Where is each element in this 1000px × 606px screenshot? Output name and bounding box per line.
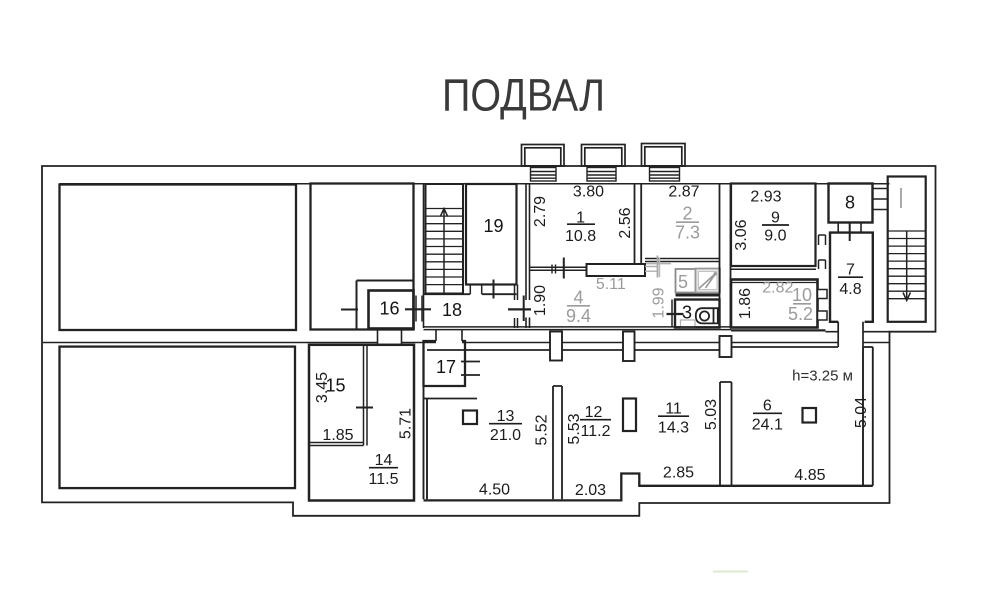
svg-text:2.93: 2.93 bbox=[750, 189, 781, 206]
svg-text:10.8: 10.8 bbox=[565, 228, 596, 245]
svg-text:4.85: 4.85 bbox=[794, 467, 825, 484]
svg-text:15: 15 bbox=[325, 376, 345, 396]
svg-text:11: 11 bbox=[665, 401, 682, 418]
svg-text:5: 5 bbox=[678, 272, 688, 292]
svg-text:18: 18 bbox=[442, 300, 462, 320]
svg-text:2.87: 2.87 bbox=[668, 184, 699, 201]
svg-text:2: 2 bbox=[682, 204, 692, 224]
svg-text:5.2: 5.2 bbox=[788, 304, 813, 324]
svg-text:1.99: 1.99 bbox=[651, 287, 668, 318]
svg-text:19: 19 bbox=[483, 216, 503, 236]
svg-text:8: 8 bbox=[845, 193, 855, 213]
svg-text:14: 14 bbox=[375, 452, 393, 469]
svg-text:5.71: 5.71 bbox=[398, 408, 415, 439]
svg-text:5.03: 5.03 bbox=[703, 399, 720, 430]
svg-text:h=3.25 м: h=3.25 м bbox=[792, 368, 853, 385]
svg-text:3.06: 3.06 bbox=[733, 219, 750, 250]
svg-text:24.1: 24.1 bbox=[752, 417, 783, 434]
svg-text:3.80: 3.80 bbox=[573, 184, 604, 201]
svg-text:13: 13 bbox=[497, 408, 515, 425]
svg-text:7.3: 7.3 bbox=[675, 223, 700, 243]
svg-text:4.50: 4.50 bbox=[479, 482, 510, 499]
svg-text:9.4: 9.4 bbox=[566, 306, 591, 326]
svg-text:5.04: 5.04 bbox=[853, 397, 870, 428]
svg-text:10: 10 bbox=[792, 285, 812, 305]
svg-text:3: 3 bbox=[682, 303, 692, 323]
svg-text:14.3: 14.3 bbox=[658, 420, 689, 437]
svg-text:ПОДВАЛ: ПОДВАЛ bbox=[442, 70, 605, 121]
svg-text:1.86: 1.86 bbox=[737, 288, 754, 319]
svg-text:4.8: 4.8 bbox=[839, 281, 861, 298]
svg-text:5.11: 5.11 bbox=[596, 276, 626, 293]
svg-text:2.82: 2.82 bbox=[762, 280, 793, 297]
svg-text:21.0: 21.0 bbox=[490, 427, 521, 444]
svg-text:7: 7 bbox=[846, 262, 855, 279]
svg-text:2.79: 2.79 bbox=[532, 196, 549, 227]
svg-text:2.56: 2.56 bbox=[617, 207, 634, 238]
svg-text:11.2: 11.2 bbox=[581, 423, 611, 440]
svg-text:17: 17 bbox=[436, 357, 456, 377]
svg-text:9.0: 9.0 bbox=[764, 228, 786, 245]
svg-text:12: 12 bbox=[585, 404, 603, 421]
svg-text:2.03: 2.03 bbox=[575, 482, 606, 499]
svg-text:4: 4 bbox=[573, 288, 583, 308]
svg-text:1.85: 1.85 bbox=[322, 427, 353, 444]
svg-text:5.52: 5.52 bbox=[534, 414, 551, 445]
svg-text:2.85: 2.85 bbox=[663, 465, 694, 482]
svg-text:6: 6 bbox=[763, 398, 772, 415]
svg-text:11.5: 11.5 bbox=[369, 471, 399, 488]
svg-text:9: 9 bbox=[771, 210, 780, 227]
svg-text:16: 16 bbox=[379, 299, 399, 319]
svg-text:1.90: 1.90 bbox=[532, 285, 549, 316]
